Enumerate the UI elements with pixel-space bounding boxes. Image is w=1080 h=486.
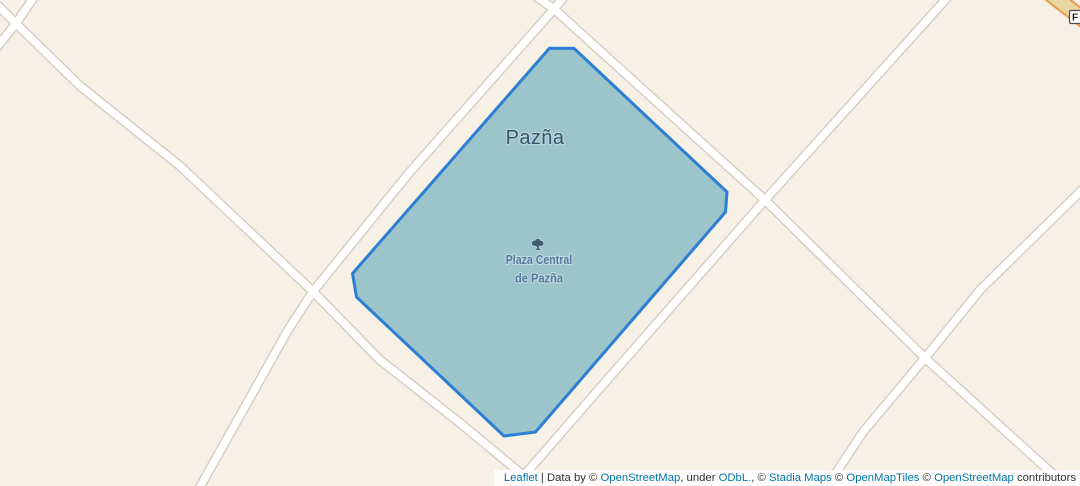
svg-text:Pazña: Pazña: [506, 127, 565, 149]
svg-text:de Pazña: de Pazña: [515, 271, 564, 286]
svg-text:Plaza Central: Plaza Central: [506, 252, 573, 267]
svg-text:F: F: [1072, 13, 1078, 24]
